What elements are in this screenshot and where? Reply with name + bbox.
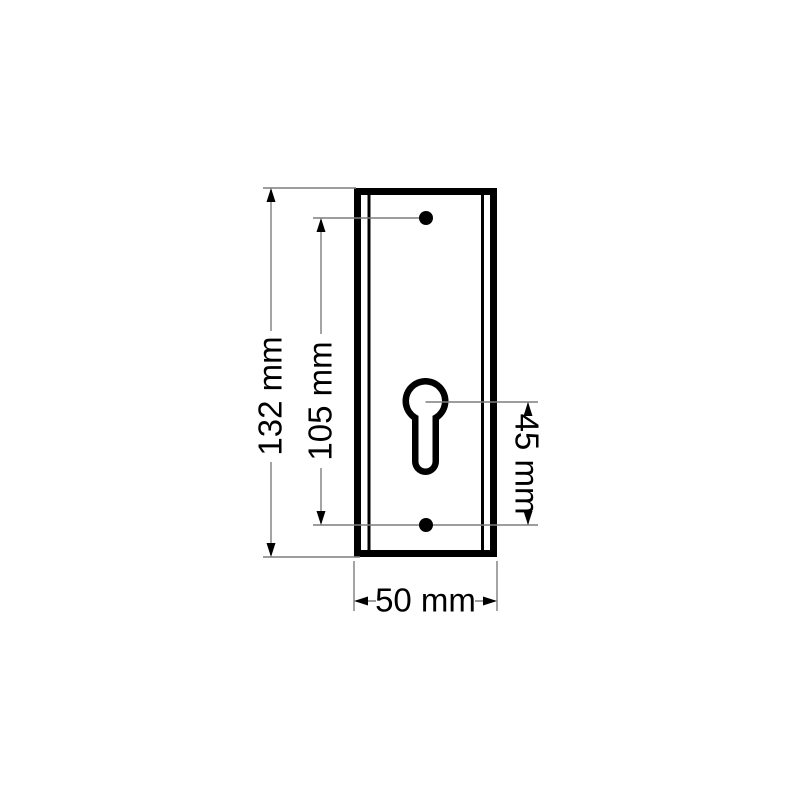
technical-drawing-canvas: 132 mm 105 mm 45 mm 50 mm — [0, 0, 800, 800]
plate-outline — [358, 192, 494, 554]
lock-plate — [358, 192, 494, 554]
arrow-up-icon — [317, 218, 326, 232]
dimension-label-overall-width: 50 mm — [375, 582, 476, 619]
dimension-overall-width: 50 mm — [354, 582, 497, 619]
screw-hole-top — [419, 211, 433, 225]
screw-hole-bottom — [419, 518, 433, 532]
arrow-down-icon — [317, 511, 326, 525]
arrow-left-icon — [354, 597, 368, 606]
euro-cylinder-keyhole — [403, 378, 449, 475]
keyhole-stem-inner — [419, 401, 433, 469]
lock-plate-dimension-drawing: 132 mm 105 mm 45 mm 50 mm — [0, 0, 800, 800]
dimension-overall-height: 132 mm — [252, 188, 289, 557]
dimension-label-overall-height: 132 mm — [252, 336, 289, 455]
arrow-up-icon — [267, 188, 276, 202]
dimension-cylinder-to-screw-hole: 45 mm — [508, 402, 545, 525]
dimension-screw-hole-spacing: 105 mm — [302, 218, 339, 525]
arrow-down-icon — [267, 543, 276, 557]
dimension-label-cylinder-to-screw-hole: 45 mm — [508, 414, 545, 515]
dimension-label-screw-hole-spacing: 105 mm — [302, 341, 339, 460]
arrow-right-icon — [483, 597, 497, 606]
